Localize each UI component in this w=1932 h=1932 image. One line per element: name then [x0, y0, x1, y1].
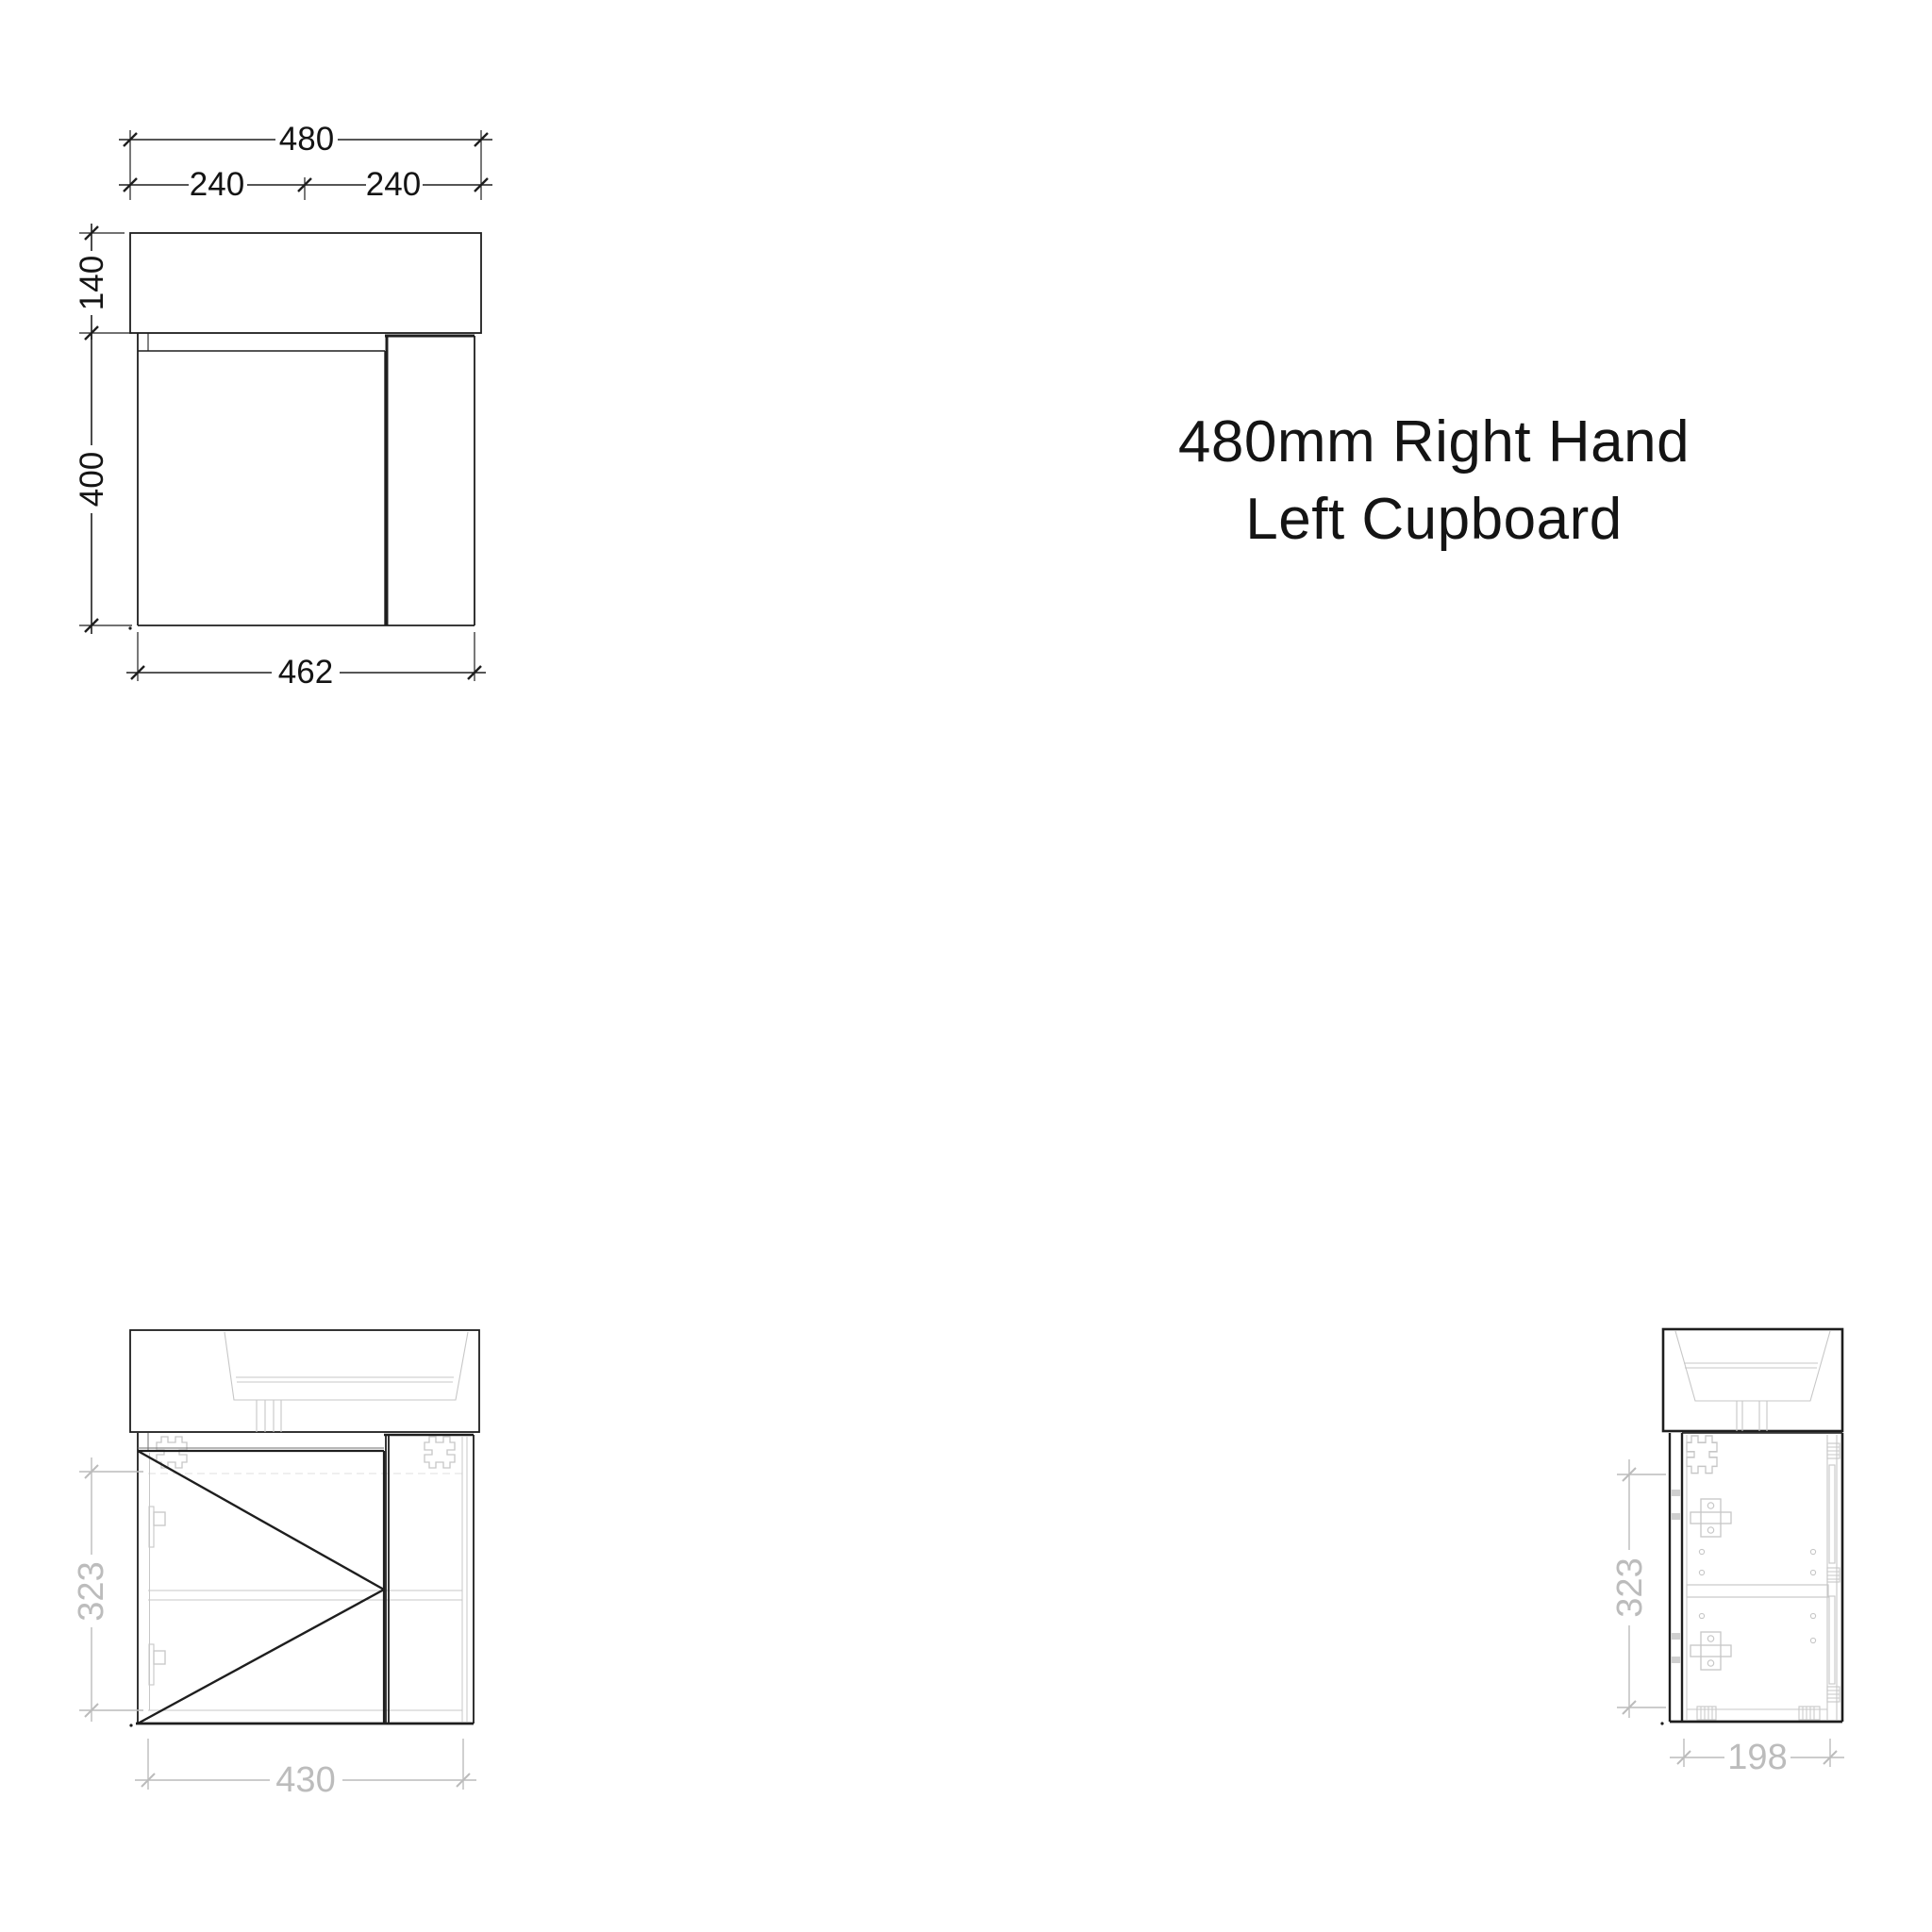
side-internal-drawing: 323 198	[1604, 1316, 1868, 1807]
dim-label-323-side: 323	[1610, 1557, 1650, 1617]
hinge-plate-icon	[1687, 1436, 1717, 1474]
dim-label-480: 480	[279, 121, 334, 158]
front-internal-drawing: 323 430	[57, 1316, 500, 1844]
basin-top	[130, 233, 481, 333]
cabinet-front	[128, 333, 475, 630]
basin-side	[1663, 1329, 1842, 1431]
shelf-side	[1687, 1585, 1828, 1597]
extension-lines	[79, 130, 481, 681]
bottom-fixing-blocks	[1687, 1707, 1827, 1720]
dim-label-323-front: 323	[72, 1561, 111, 1621]
hinge-slots	[1671, 1490, 1681, 1663]
front-elevation-view: 480 240 240 140 400 462	[57, 104, 509, 708]
dim-cabinet-width: 462	[126, 654, 486, 691]
dim-cabinet-height: 400	[74, 333, 110, 634]
side-panel	[1660, 1433, 1842, 1725]
dim-label-198: 198	[1727, 1738, 1787, 1777]
door-swing-line-top	[138, 1451, 384, 1590]
dim-half-widths: 240 240	[119, 166, 492, 203]
side-internal-view: 323 198	[1604, 1316, 1868, 1807]
dim-side-height: 323	[1610, 1459, 1666, 1718]
cabinet-door-outline	[129, 1433, 474, 1727]
right-cupboard-front	[385, 336, 475, 625]
right-cupboard-outline	[384, 1435, 474, 1724]
door-edge-bar	[1670, 1433, 1682, 1722]
hinge-cup-icon	[149, 1507, 165, 1685]
drawing-title: 480mm Right Hand Left Cupboard	[1178, 404, 1690, 558]
drain-lines	[1737, 1401, 1767, 1431]
drain-lines	[257, 1400, 281, 1432]
drawing-title-line2: Left Cupboard	[1178, 481, 1690, 558]
dim-label-140: 140	[74, 256, 110, 310]
basin-front	[130, 1330, 479, 1432]
dim-label-240-left: 240	[190, 166, 244, 203]
dim-label-430: 430	[275, 1760, 335, 1800]
hinge-plate-icon	[157, 1437, 455, 1468]
internal-lines	[148, 1437, 467, 1722]
dim-top-height: 140	[74, 224, 110, 340]
dim-label-462: 462	[278, 654, 333, 691]
rear-mounting-rail	[1827, 1435, 1840, 1720]
shelf-pin-holes	[1699, 1549, 1815, 1642]
door-swing-line-bottom	[138, 1590, 384, 1724]
dim-overall-width: 480	[119, 121, 492, 158]
drawing-title-line1: 480mm Right Hand	[1178, 404, 1690, 481]
dim-internal-height: 323	[72, 1457, 143, 1722]
dim-internal-width: 430	[135, 1739, 476, 1800]
dim-label-240-right: 240	[366, 166, 421, 203]
front-elevation-drawing: 480 240 240 140 400 462	[57, 104, 509, 708]
front-internal-view: 323 430	[57, 1316, 500, 1844]
dim-depth: 198	[1670, 1738, 1844, 1777]
dim-label-400: 400	[74, 452, 110, 507]
